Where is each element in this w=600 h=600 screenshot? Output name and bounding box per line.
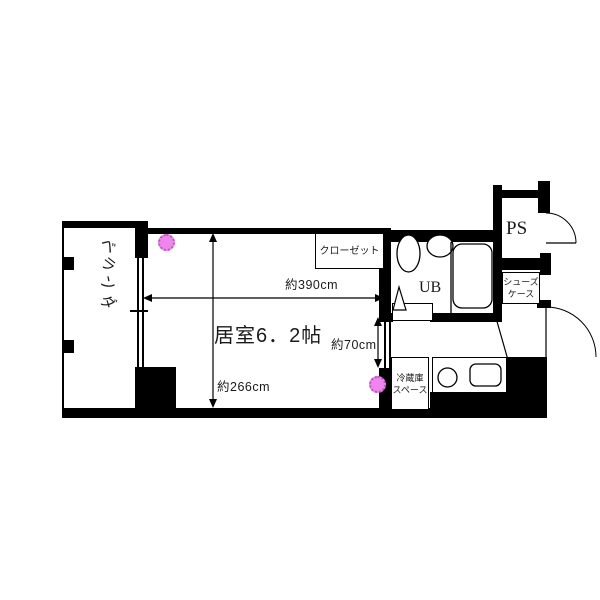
dim-arrow-width bbox=[143, 294, 384, 302]
basin-icon bbox=[427, 235, 453, 257]
pipe-space-label: PS bbox=[506, 219, 527, 240]
balcony-label: ベ ラ ン ダ bbox=[99, 238, 114, 314]
living-room-label: 居室6．2帖 bbox=[214, 325, 322, 347]
ps-door-arc bbox=[546, 213, 576, 243]
pink-marker-room bbox=[158, 234, 175, 251]
burner-icon bbox=[438, 368, 457, 387]
kitchen-sink-icon bbox=[470, 364, 501, 386]
genkan-step-line bbox=[496, 318, 508, 360]
pink-marker-kitchen bbox=[369, 376, 386, 393]
unit-bath-label: UB bbox=[419, 279, 441, 297]
entry-door-arc bbox=[546, 307, 596, 357]
bath-door-triangle-icon bbox=[393, 287, 406, 310]
floor-plan: クローゼット シューズ ケース 冷蔵庫 スペース bbox=[0, 0, 600, 600]
dim-arrow-depth bbox=[209, 233, 217, 408]
dim-opening-label: 約70cm bbox=[331, 339, 377, 353]
toilet-icon bbox=[397, 235, 420, 272]
dim-depth-label: 約266cm bbox=[217, 381, 270, 395]
fixtures-layer bbox=[0, 0, 600, 600]
bathtub-icon bbox=[453, 244, 492, 308]
dim-width-label: 約390cm bbox=[285, 279, 338, 293]
